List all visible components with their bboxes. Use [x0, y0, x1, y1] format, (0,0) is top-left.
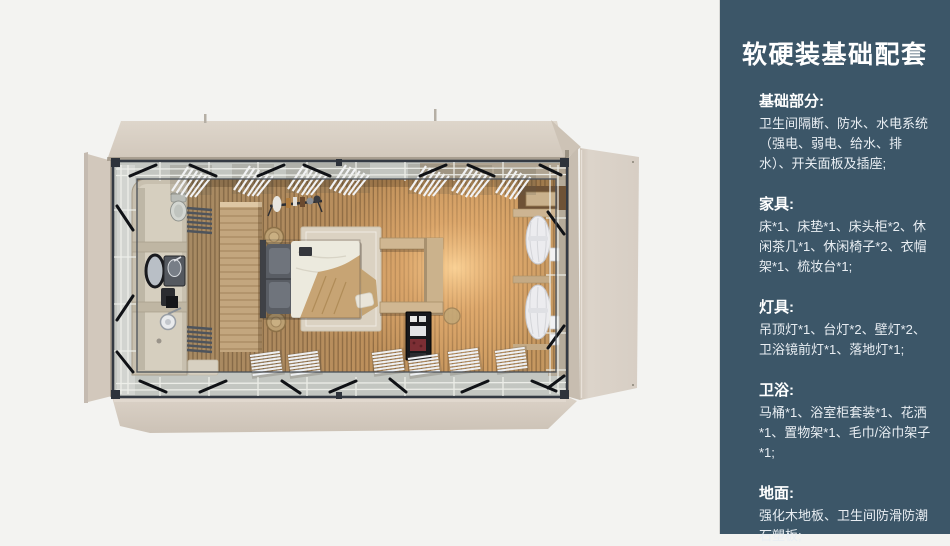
lounge-curtain-2 — [526, 285, 551, 339]
garment-icon — [273, 196, 282, 212]
spec-section-body: 床*1、床垫*1、床头柜*2、休闲茶几*1、休闲椅子*2、衣帽架*1、梳妆台*1… — [759, 217, 932, 277]
bottle-icon — [293, 197, 297, 206]
roof-fitting-icon — [204, 114, 207, 123]
spec-section: 卫浴:马桶*1、浴室柜套装*1、花洒*1、置物架*1、毛巾/浴巾架子*1; — [759, 381, 932, 463]
threshold — [188, 360, 218, 375]
spec-sections: 基础部分:卫生间隔断、防水、水电系统（强电、弱电、给水、排水）、开关面板及插座;… — [759, 92, 942, 546]
spec-sidebar: 软硬装基础配套 基础部分:卫生间隔断、防水、水电系统（强电、弱电、给水、排水）、… — [719, 0, 950, 534]
lounge-curtain-1 — [526, 216, 550, 264]
hat-icon — [314, 196, 321, 203]
headboard — [260, 240, 266, 318]
spec-section: 灯具:吊顶灯*1、台灯*2、壁灯*2、卫浴镜前灯*1、落地灯*1; — [759, 298, 932, 360]
spec-section: 家具:床*1、床垫*1、床头柜*2、休闲茶几*1、休闲椅子*2、衣帽架*1、梳妆… — [759, 195, 932, 277]
spec-section-body: 强化木地板、卫生间防滑防潮石塑板; — [759, 506, 932, 546]
bathroom-divider — [132, 302, 187, 312]
roof-fitting-icon — [434, 109, 437, 121]
floor-tray — [444, 308, 460, 324]
toilet — [171, 193, 187, 221]
bathroom-pod — [132, 179, 187, 375]
tray-on-bed — [299, 247, 312, 256]
spec-section-heading: 家具: — [759, 195, 932, 214]
spec-section-heading: 灯具: — [759, 298, 932, 317]
sidebar-title: 软硬装基础配套 — [742, 40, 942, 70]
bathroom-divider — [132, 242, 187, 252]
shower-drain-icon — [157, 339, 162, 344]
spec-section-heading: 地面: — [759, 484, 932, 503]
spec-section-heading: 基础部分: — [759, 92, 932, 111]
floorplan-render — [0, 0, 719, 534]
spec-section-body: 吊顶灯*1、台灯*2、壁灯*2、卫浴镜前灯*1、落地灯*1; — [759, 320, 932, 360]
hat-icon — [307, 198, 314, 205]
curtain-rail — [513, 276, 551, 283]
spec-section-heading: 卫浴: — [759, 381, 932, 400]
bottle-icon — [286, 198, 291, 208]
spec-section: 基础部分:卫生间隔断、防水、水电系统（强电、弱电、给水、排水）、开关面板及插座; — [759, 92, 932, 174]
slide: { "page": { "background": "#f3f3f1" }, "… — [0, 0, 950, 534]
partition-wardrobe — [220, 202, 262, 352]
spec-section: 地面:强化木地板、卫生间防滑防潮石塑板; — [759, 484, 932, 546]
shell-bottom-flap — [112, 396, 577, 433]
render-area — [0, 0, 719, 534]
minibar-cabinet — [406, 312, 431, 360]
garment-icon — [300, 197, 305, 207]
shell-left-flap — [84, 152, 112, 403]
bed — [260, 240, 378, 320]
spec-section-body: 马桶*1、浴室柜套装*1、花洒*1、置物架*1、毛巾/浴巾架子*1; — [759, 403, 932, 463]
spec-section-body: 卫生间隔断、防水、水电系统（强电、弱电、给水、排水）、开关面板及插座; — [759, 114, 932, 174]
